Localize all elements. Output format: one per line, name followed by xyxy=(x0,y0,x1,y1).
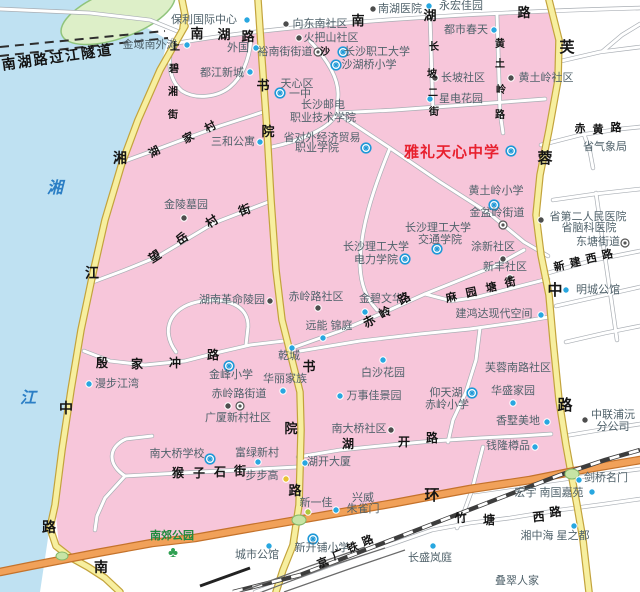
poi-label: 叠翠人家 xyxy=(495,573,539,587)
poi-marker-blue-dot[interactable] xyxy=(257,139,263,145)
poi-marker-dark-dot[interactable] xyxy=(267,298,273,304)
school-icon[interactable] xyxy=(467,388,477,398)
poi-label: 都江新城 xyxy=(200,65,244,79)
poi-label: 宏宇 南国嘉苑 xyxy=(514,485,583,499)
poi-label: 钱隆樽品 xyxy=(486,438,530,452)
poi-label: 赤岭路街道 xyxy=(212,386,267,400)
poi-label: 赤岭小学 xyxy=(425,397,469,411)
road-label: 南 xyxy=(94,559,108,575)
poi-label: 漫步江湾 xyxy=(95,376,139,390)
subdistrict-office-icon[interactable] xyxy=(621,239,629,247)
poi-label: 东塘街道 xyxy=(576,234,620,248)
poi-label: 都市春天 xyxy=(444,22,488,36)
poi-label: 新一佳 xyxy=(300,495,333,509)
road-label: 湖 xyxy=(423,8,436,23)
road-label: 书 xyxy=(256,78,269,93)
poi-marker-blue-dot[interactable] xyxy=(571,523,577,529)
poi-label: 沙湖桥小学 xyxy=(342,57,397,71)
poi-label: 南郊公园 xyxy=(150,528,194,542)
poi-label: 电力学院 xyxy=(354,252,398,266)
poi-label: 金峰小学 xyxy=(209,367,253,381)
road-label: 院 xyxy=(261,124,274,139)
road-label: 中 xyxy=(547,281,562,299)
poi-label: 南大桥学校 xyxy=(150,446,205,460)
road-label: 湘 xyxy=(113,150,127,166)
poi-marker-blue-dot[interactable] xyxy=(255,459,261,465)
poi-label: 长沙邮电 xyxy=(301,98,345,111)
road-label: 街 xyxy=(233,463,246,478)
poi-marker-dark-dot[interactable] xyxy=(283,21,289,27)
poi-label: 裕南街街道 xyxy=(258,44,313,58)
road-label: 坡 xyxy=(427,67,438,80)
road-label: 路 xyxy=(611,120,623,134)
road-label: 子 xyxy=(193,466,205,480)
poi-label: 省第二人民医院 xyxy=(550,209,627,223)
poi-label: 保利国际中心 xyxy=(171,12,237,26)
poi-label: 星电花园 xyxy=(439,92,483,105)
poi-marker-blue-dot[interactable] xyxy=(589,489,595,495)
road-label: 湖 xyxy=(217,27,230,42)
poi-label: 远能 锦庭 xyxy=(305,318,352,332)
poi-label: 城市公馆 xyxy=(235,547,279,561)
poi-label: 剑桥名门 xyxy=(584,470,628,484)
poi-marker-dark-dot[interactable] xyxy=(315,305,321,311)
poi-marker-dark-dot[interactable] xyxy=(296,35,302,41)
road-label: 路 xyxy=(288,483,302,498)
road-label: 猴 xyxy=(172,465,185,480)
poi-label: 金陵墓园 xyxy=(164,197,208,211)
subdistrict-office-icon[interactable] xyxy=(499,221,507,229)
map-stage: ♣ 保利国际中心南湖医院永宏佳园向东南社区金域南外滩外国火把山社区裕南街街道都江… xyxy=(0,0,640,592)
road-label: 环 xyxy=(424,487,439,504)
poi-marker-blue-dot[interactable] xyxy=(430,543,436,549)
poi-marker-blue-dot[interactable] xyxy=(544,419,550,425)
road-label: 江 xyxy=(85,265,99,281)
poi-label: 步步高 xyxy=(246,468,279,482)
road-label: 上 xyxy=(170,40,180,53)
road-label: 路 xyxy=(241,29,255,44)
poi-label: 建鸿达现代空间 xyxy=(456,306,533,320)
road-label: 黄 xyxy=(495,37,505,50)
poi-marker-blue-dot[interactable] xyxy=(333,507,339,513)
poi-label: 长盛岚庭 xyxy=(408,550,452,564)
poi-label: 长坡社区 xyxy=(441,70,485,84)
poi-label: 华盛家园 xyxy=(491,383,535,397)
poi-marker-dark-dot[interactable] xyxy=(388,427,394,433)
poi-marker-blue-dot[interactable] xyxy=(491,27,497,33)
subdistrict-office-icon[interactable] xyxy=(236,402,244,410)
poi-label: 永宏佳园 xyxy=(439,0,483,12)
road-label: 黄 xyxy=(593,122,604,136)
poi-marker-ygreen-dot[interactable] xyxy=(305,509,311,515)
poi-label: 涂新社区 xyxy=(471,239,515,253)
poi-label: 赤岭路社区 xyxy=(289,289,344,303)
poi-marker-blue-dot[interactable] xyxy=(280,388,286,394)
poi-label: 黄土岭社区 xyxy=(519,70,574,84)
poi-label: 湘中海 星之都 xyxy=(520,528,589,542)
poi-marker-dark-dot[interactable] xyxy=(370,6,376,12)
poi-label: 仰天湖 xyxy=(430,385,463,399)
poi-marker-blue-dot[interactable] xyxy=(532,444,538,450)
park-tree-icon[interactable]: ♣ xyxy=(168,544,178,561)
school-icon[interactable] xyxy=(331,60,341,70)
road-label: 竹 xyxy=(453,510,467,526)
poi-label: 职业技术学院 xyxy=(290,110,356,124)
road-label: 路 xyxy=(495,108,506,121)
poi-label: 雅礼天心中学 xyxy=(403,143,500,161)
road-label: 二 xyxy=(428,87,438,99)
road-label: 赤 xyxy=(575,121,586,135)
poi-label: 火把山社区 xyxy=(304,30,359,44)
map-canvas[interactable]: ♣ 保利国际中心南湖医院永宏佳园向东南社区金域南外滩外国火把山社区裕南街街道都江… xyxy=(0,0,640,592)
poi-marker-dark-dot[interactable] xyxy=(508,75,514,81)
poi-label: 分公司 xyxy=(597,420,630,433)
poi-label: 南湖医院 xyxy=(378,1,422,15)
poi-marker-blue-dot[interactable] xyxy=(337,393,343,399)
poi-marker-blue-dot[interactable] xyxy=(184,42,190,48)
poi-label: 省气象局 xyxy=(583,139,627,153)
road-label: 岭 xyxy=(496,83,506,96)
road-label: 西 xyxy=(532,510,545,525)
road-label: 长 xyxy=(429,40,440,53)
poi-marker-blue-dot[interactable] xyxy=(563,287,569,293)
poi-marker-blue-dot[interactable] xyxy=(247,69,253,75)
poi-marker-blue-dot[interactable] xyxy=(244,17,250,23)
poi-label: 朱雀门 xyxy=(347,501,380,515)
poi-label: 富绿新村 xyxy=(235,445,279,459)
poi-label: 芙蓉南路社区 xyxy=(485,360,551,374)
road-label: 湘 xyxy=(168,85,178,98)
school-icon[interactable] xyxy=(361,143,371,153)
poi-label: 万事佳景园 xyxy=(347,388,402,402)
road-label: 路 xyxy=(207,347,220,362)
river-label: 江 xyxy=(20,389,38,407)
road-label: 碧 xyxy=(168,62,179,75)
poi-label: 新丰社区 xyxy=(483,259,527,273)
poi-label: 广厦新村社区 xyxy=(205,410,271,424)
road-label: 芙 xyxy=(558,38,575,56)
poi-marker-blue-dot[interactable] xyxy=(380,357,386,363)
road-label: 南 xyxy=(351,13,364,28)
school-icon[interactable] xyxy=(400,254,410,264)
poi-label: 长沙理工大学 xyxy=(405,220,471,234)
road-label: 蓉 xyxy=(537,149,552,167)
poi-marker-blue-dot[interactable] xyxy=(86,381,92,387)
road-label: 中 xyxy=(59,400,73,416)
road-label: 路 xyxy=(517,5,531,20)
road-label: 街 xyxy=(167,108,178,121)
poi-marker-blue-dot[interactable] xyxy=(510,400,516,406)
poi-label: 职业学院 xyxy=(295,140,339,154)
poi-marker-blue-dot[interactable] xyxy=(538,312,544,318)
poi-marker-dark-dot[interactable] xyxy=(538,217,544,223)
road-label: 家 xyxy=(131,356,144,371)
poi-label: 明城公馆 xyxy=(576,282,620,296)
poi-marker-dark-dot[interactable] xyxy=(181,215,187,221)
road-label: 路 xyxy=(42,519,57,535)
poi-marker-blue-dot[interactable] xyxy=(576,477,582,483)
road-label: 路 xyxy=(426,430,439,445)
poi-label: 香墅美地 xyxy=(496,414,540,427)
road-label: 冲 xyxy=(169,355,181,370)
poi-label: 长沙职工大学 xyxy=(344,44,410,58)
road-label: 路 xyxy=(557,396,573,414)
road-label: 沙 xyxy=(320,46,330,58)
road-label: 塘 xyxy=(483,512,495,527)
road-label: 南 xyxy=(190,26,203,41)
poi-label: 三和公寓 xyxy=(211,134,255,148)
poi-label: 湖开大厦 xyxy=(307,454,351,468)
poi-label: 白沙花园 xyxy=(361,365,405,379)
road-label: 街 xyxy=(428,105,439,118)
road-label: 开 xyxy=(398,435,410,449)
poi-label: 乾城 xyxy=(278,349,300,362)
poi-marker-dark-dot[interactable] xyxy=(582,417,588,423)
poi-label: 交通学院 xyxy=(418,232,462,246)
road-label: 书 xyxy=(302,359,315,374)
poi-label: 金盆岭街道 xyxy=(470,205,525,219)
poi-label: 向东南社区 xyxy=(293,16,348,30)
road-label: 院 xyxy=(284,421,297,436)
poi-label: 省脑科医院 xyxy=(562,220,617,234)
poi-label: 南大桥社区 xyxy=(332,421,387,435)
poi-marker-blue-dot[interactable] xyxy=(320,335,326,341)
school-icon[interactable] xyxy=(205,454,215,464)
poi-marker-dark-dot[interactable] xyxy=(225,403,231,409)
road-label: 殷 xyxy=(96,355,109,370)
road-label: 石 xyxy=(213,465,226,479)
poi-marker-yellow-dot[interactable] xyxy=(283,476,289,482)
poi-label: 湖南革命陵园 xyxy=(199,292,265,306)
poi-label: 中联浦沅 xyxy=(591,408,635,421)
poi-label: 长沙理工大学 xyxy=(343,239,409,253)
poi-label: 黄土岭小学 xyxy=(469,183,524,197)
school-icon[interactable] xyxy=(506,146,516,156)
road-label: 湖 xyxy=(342,436,354,451)
road-label: 土 xyxy=(495,57,505,70)
poi-label: 华丽家族 xyxy=(263,371,307,385)
